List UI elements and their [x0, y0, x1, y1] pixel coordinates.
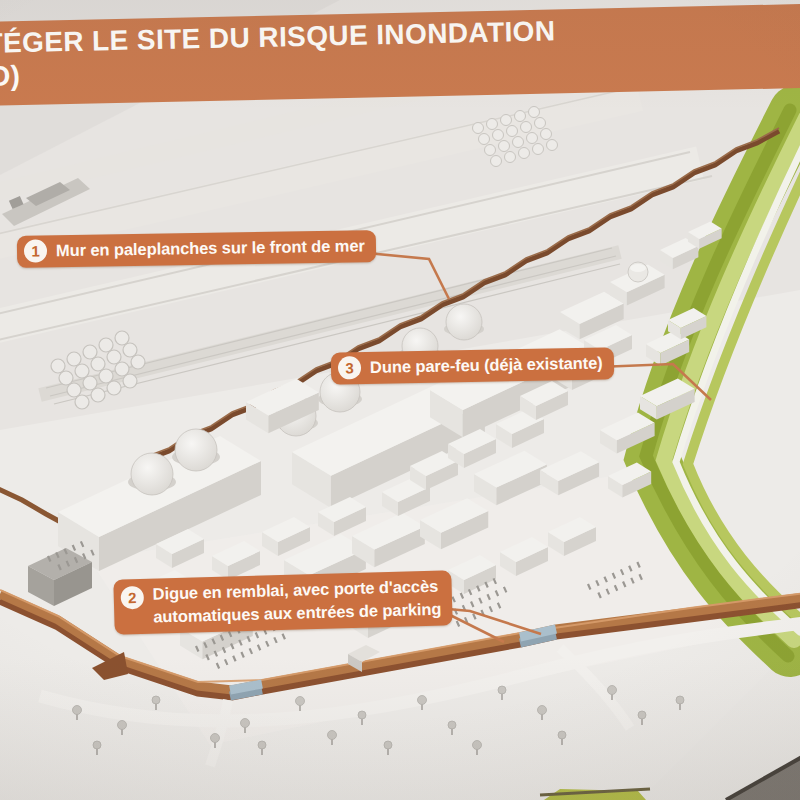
- callout-3-label: Dune pare-feu (déjà existante): [370, 352, 603, 379]
- callout-2-dike: 2 Digue en remblai, avec porte d'accès a…: [113, 570, 452, 634]
- callout-1-seawall: 1 Mur en paleplanches sur le front de me…: [17, 230, 376, 268]
- callout-1-label: Mur en paleplanches sur le front de mer: [56, 234, 365, 262]
- callout-1-number-badge: 1: [24, 239, 47, 262]
- callout-2-number-badge: 2: [120, 586, 144, 610]
- dike-gate-left: [230, 684, 262, 696]
- callout-2-label: Digue en remblai, avec porte d'accès aut…: [152, 575, 441, 629]
- callout-3-number-badge: 3: [338, 356, 361, 379]
- round-tank: [628, 262, 648, 282]
- site-diagram: [0, 0, 800, 800]
- callout-3-dune: 3 Dune pare-feu (déjà existante): [331, 347, 614, 384]
- title-banner: TÉGER LE SITE DU RISQUE INONDATION IO): [0, 3, 800, 106]
